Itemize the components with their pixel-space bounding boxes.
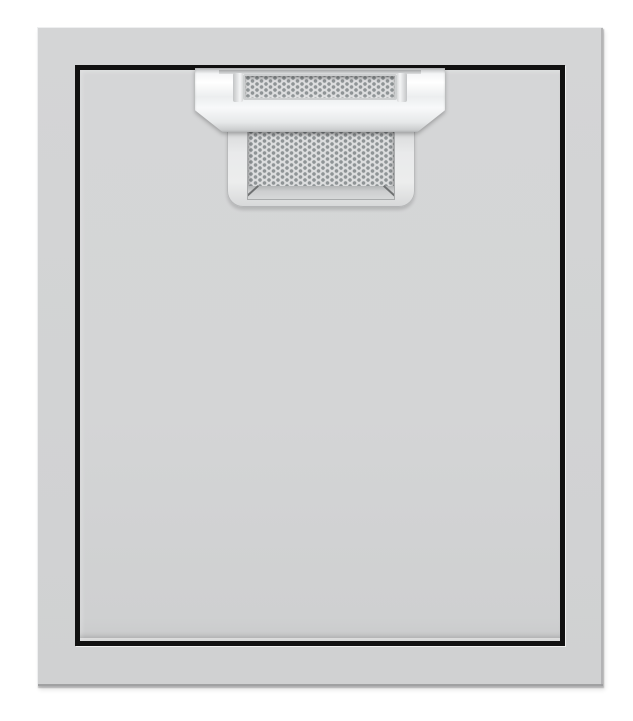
pocket-perforated-back [247,130,395,200]
door-handle [195,68,445,132]
handle-ridge-left [233,73,243,102]
pocket-bevel [248,186,394,199]
handle-pocket [227,130,415,207]
handle-ridge-right [397,73,407,102]
product-photo [0,0,633,721]
handle-perforated-insert [243,74,397,100]
